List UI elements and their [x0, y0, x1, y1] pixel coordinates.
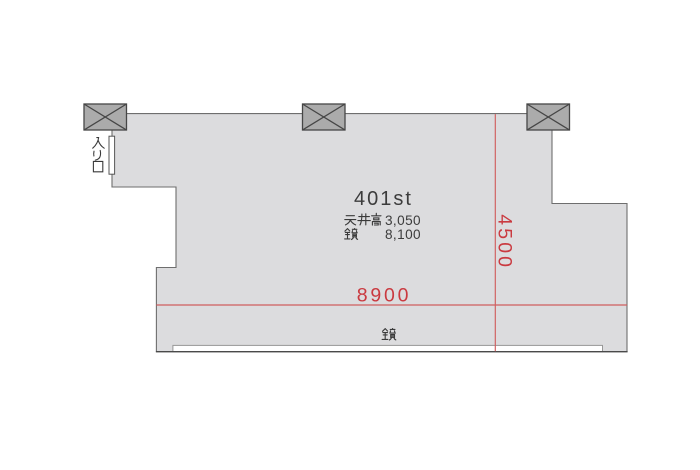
svg-text:8,100: 8,100	[385, 227, 421, 242]
svg-text:401st: 401st	[354, 188, 413, 210]
svg-text:4500: 4500	[493, 214, 515, 270]
svg-text:3,050: 3,050	[385, 213, 421, 228]
svg-text:8900: 8900	[357, 285, 412, 307]
